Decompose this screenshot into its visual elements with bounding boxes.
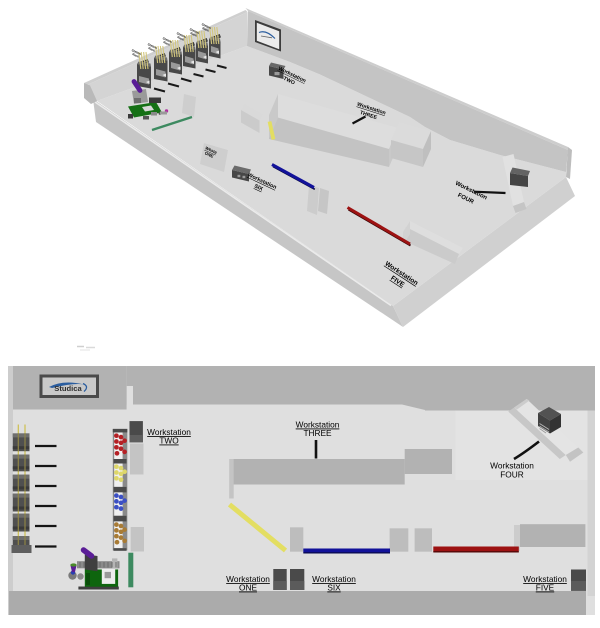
svg-text:THREE: THREE <box>303 428 332 438</box>
svg-text:TWO: TWO <box>159 436 179 446</box>
svg-text:ONE: ONE <box>239 583 257 593</box>
svg-text:SIX: SIX <box>327 583 341 593</box>
svg-text:FOUR: FOUR <box>500 470 524 480</box>
svg-text:FIVE: FIVE <box>536 583 555 593</box>
svg-text:Studica: Studica <box>54 384 82 393</box>
